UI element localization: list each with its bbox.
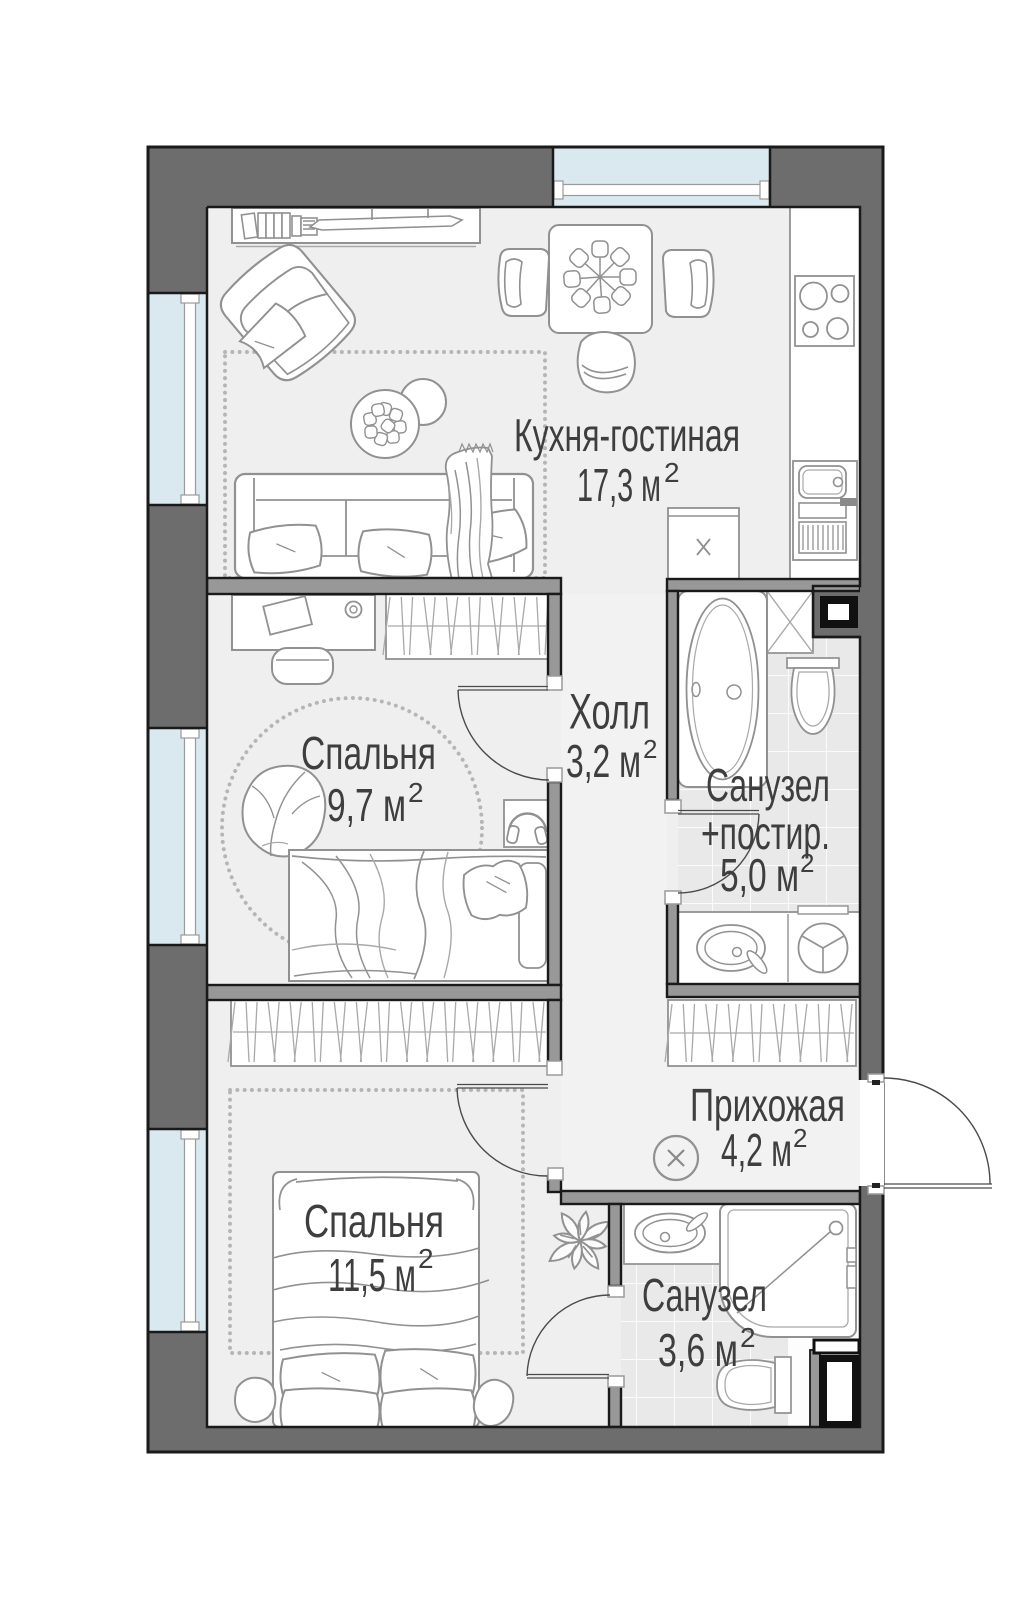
svg-text:2: 2 — [418, 1243, 434, 1274]
svg-text:Санузел: Санузел — [642, 1269, 767, 1321]
svg-text:5,0 м: 5,0 м — [720, 849, 799, 901]
svg-text:Спальня: Спальня — [301, 727, 436, 779]
svg-text:9,7 м: 9,7 м — [327, 779, 406, 831]
svg-text:3,6 м: 3,6 м — [658, 1324, 738, 1376]
svg-text:2: 2 — [793, 1123, 807, 1153]
svg-text:4,2 м: 4,2 м — [721, 1124, 792, 1176]
svg-text:11,5 м: 11,5 м — [328, 1249, 416, 1301]
svg-text:Спальня: Спальня — [304, 1195, 444, 1247]
svg-text:Санузел: Санузел — [706, 759, 830, 811]
svg-text:2: 2 — [664, 457, 680, 488]
svg-text:2: 2 — [643, 734, 657, 764]
svg-text:3,2 м: 3,2 м — [566, 735, 641, 787]
svg-text:Кухня-гостиная: Кухня-гостиная — [514, 409, 740, 461]
svg-text:17,3 м: 17,3 м — [577, 459, 661, 511]
svg-text:2: 2 — [800, 848, 814, 878]
svg-text:Холл: Холл — [569, 684, 650, 740]
svg-text:2: 2 — [408, 777, 424, 808]
svg-text:2: 2 — [740, 1322, 756, 1353]
